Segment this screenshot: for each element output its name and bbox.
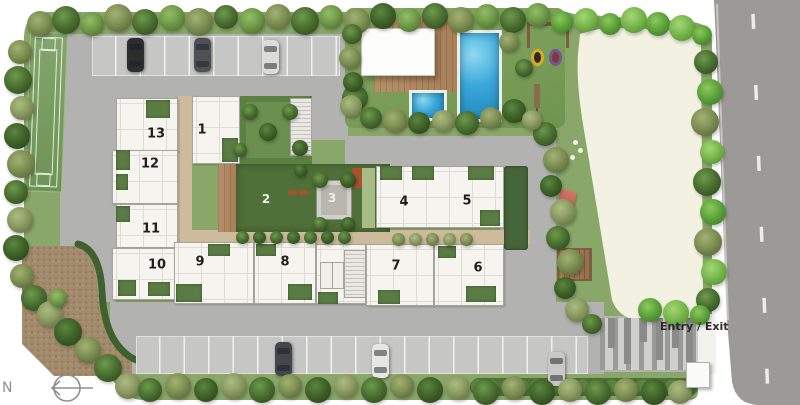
parked-car: [127, 38, 144, 72]
parked-car: [262, 40, 279, 74]
parked-car: [275, 342, 292, 376]
site-plan: 12345678910111213 Entry / Exit N: [0, 0, 800, 405]
north-indicator: N: [0, 370, 112, 404]
parked-car: [548, 352, 565, 386]
guard-cabin: [686, 362, 710, 388]
parked-car: [194, 38, 211, 72]
entry-exit-label: Entry / Exit: [660, 320, 770, 333]
cars-layer: [0, 0, 800, 405]
north-arrow-icon: [40, 372, 98, 404]
north-label: N: [2, 380, 12, 396]
parked-car: [372, 344, 389, 378]
